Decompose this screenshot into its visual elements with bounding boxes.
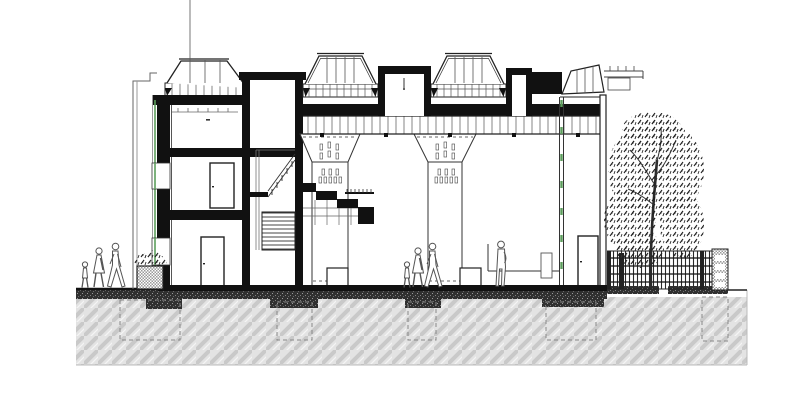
skylight-monitor-annex	[165, 0, 247, 96]
ground-floor-slab	[158, 285, 607, 291]
roof-box-2	[506, 68, 532, 116]
stair-shaft-wall	[242, 80, 250, 287]
architectural-section-canvas	[0, 0, 800, 400]
stair-flight-lower	[262, 212, 295, 250]
annex-door	[201, 237, 224, 287]
hall-rib-ceiling	[303, 116, 604, 137]
person-standing	[496, 241, 506, 286]
person-woman	[94, 248, 105, 287]
section-drawing	[0, 0, 800, 400]
annex-window	[152, 163, 170, 189]
skylight-monitor-hall-1	[303, 54, 378, 98]
stair-flight-upper	[268, 154, 295, 197]
hall-door	[578, 236, 598, 287]
people-inside	[404, 241, 506, 287]
person-man	[108, 243, 126, 287]
hall-right-wall	[600, 95, 606, 287]
person-man	[425, 243, 443, 287]
roof-box-1	[378, 66, 431, 116]
skylight-monitor-tilted	[560, 65, 604, 97]
person-woman	[413, 248, 424, 287]
tree-foliage	[604, 112, 704, 268]
entrance-canopy	[604, 66, 643, 90]
roof-parapet	[532, 72, 562, 94]
stair-tower	[239, 72, 306, 287]
person-child	[82, 262, 88, 288]
stair-tower-roof	[239, 72, 306, 80]
fence-pier	[712, 249, 728, 290]
suspended-ceiling	[172, 108, 238, 112]
hall-window	[541, 253, 552, 278]
people-outside	[82, 243, 125, 287]
cantilever-stair	[295, 183, 374, 225]
skylight-monitor-hall-2	[431, 54, 506, 98]
annex-door	[210, 163, 234, 208]
hall-roof-slab	[303, 104, 604, 116]
floor-slab	[170, 148, 295, 157]
person-child	[404, 262, 410, 288]
ground-hatch	[76, 286, 747, 365]
floor-slab	[170, 210, 242, 220]
